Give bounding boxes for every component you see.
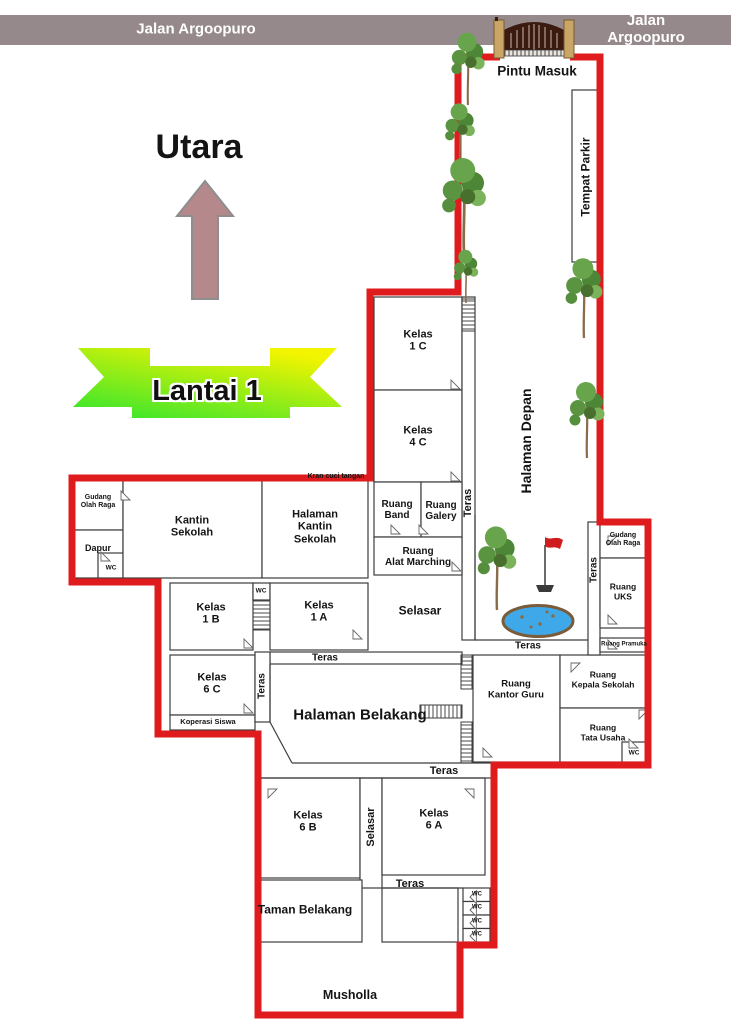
teras-strip-depan — [462, 297, 475, 640]
label-teras-kelas-1a: Teras — [312, 652, 338, 663]
label-koperasi-siswa: Koperasi Siswa — [180, 718, 235, 726]
label-wc-tata-usaha: WC — [629, 749, 640, 756]
room-belakang-unlabeled — [382, 888, 458, 942]
street-label-right: Jalan Argoopuro — [604, 13, 689, 47]
label-selasar-tengah: Selasar — [399, 604, 442, 617]
label-taman-belakang: Taman Belakang — [258, 903, 352, 916]
label-selasar-selatan: Selasar — [365, 807, 377, 846]
label-teras-kelas-6a: Teras — [396, 878, 425, 890]
label-ruang-uks: Ruang UKS — [610, 582, 636, 601]
label-dapur: Dapur — [85, 543, 111, 553]
label-kelas-1a: Kelas 1 A — [304, 600, 333, 625]
north-arrow — [177, 181, 233, 299]
flag — [545, 537, 563, 549]
label-kelas-4c: Kelas 4 C — [403, 425, 432, 450]
label-ruang-band: Ruang Band — [381, 499, 412, 521]
label-wc-selatan-3: WC — [472, 919, 482, 926]
label-kelas-1b: Kelas 1 B — [196, 602, 225, 627]
flagpole — [536, 537, 563, 592]
label-ruang-kepala-sekolah: Ruang Kepala Sekolah — [572, 670, 635, 689]
label-wc-tengah: WC — [256, 587, 267, 594]
label-halaman-kantin: Halaman Kantin Sekolah — [292, 509, 338, 546]
label-gudang-olah-raga-timur: Gudang Olah Raga — [606, 532, 641, 548]
compass-label: Utara — [156, 128, 243, 166]
label-kelas-6a: Kelas 6 A — [419, 808, 448, 833]
label-kelas-1c: Kelas 1 C — [403, 329, 432, 354]
room-outlines — [74, 90, 648, 942]
label-wc-selatan-1: WC — [472, 892, 482, 899]
label-halaman-depan: Halaman Depan — [519, 388, 535, 493]
halaman-belakang-edge — [270, 664, 292, 763]
floor-plan-drawing — [0, 0, 731, 1024]
label-kelas-6c: Kelas 6 C — [197, 672, 226, 697]
pond — [503, 606, 573, 637]
street-label-left: Jalan Argoopuro — [136, 22, 255, 39]
label-teras-kelas-6c: Teras — [256, 673, 267, 699]
room-kantor-guru — [473, 655, 560, 762]
label-kantin-sekolah: Kantin Sekolah — [171, 515, 213, 540]
label-teras-timur: Teras — [588, 557, 599, 583]
label-ruang-alat-marching: Ruang Alat Marching — [385, 546, 451, 568]
label-teras-depan: Teras — [462, 489, 474, 518]
label-kelas-6b: Kelas 6 B — [293, 810, 322, 835]
label-wc-selatan-2: WC — [472, 905, 482, 912]
label-tempat-parkir: Tempat Parkir — [579, 137, 592, 216]
label-wc-dapur: WC — [106, 564, 117, 571]
label-ruang-galery: Ruang Galery — [425, 500, 456, 522]
label-wc-selatan-4: WC — [472, 932, 482, 939]
floor-banner-label: Lantai 1 — [152, 375, 262, 407]
label-ruang-pramuka: Ruang Pramuka — [601, 642, 647, 649]
label-teras-halaman-belakang: Teras — [430, 765, 459, 777]
teras-strip-timur — [588, 522, 600, 655]
label-musholla: Musholla — [323, 988, 377, 1002]
teras-band-kelas-1a — [270, 652, 462, 664]
label-ruang-tata-usaha: Ruang Tata Usaha — [581, 723, 626, 742]
label-teras-courtyard: Teras — [515, 640, 541, 651]
label-ruang-kantor-guru: Ruang Kantor Guru — [488, 679, 544, 700]
gate-label: Pintu Masuk — [497, 63, 577, 78]
label-kran-cuci-tangan: Kran cuci tangan — [308, 473, 365, 481]
floor-plan-page: Jalan Argoopuro Jalan Argoopuro Pintu Ma… — [0, 0, 731, 1024]
label-gudang-olah-raga-barat: Gudang Olah Raga — [81, 494, 116, 510]
label-halaman-belakang: Halaman Belakang — [293, 708, 426, 725]
